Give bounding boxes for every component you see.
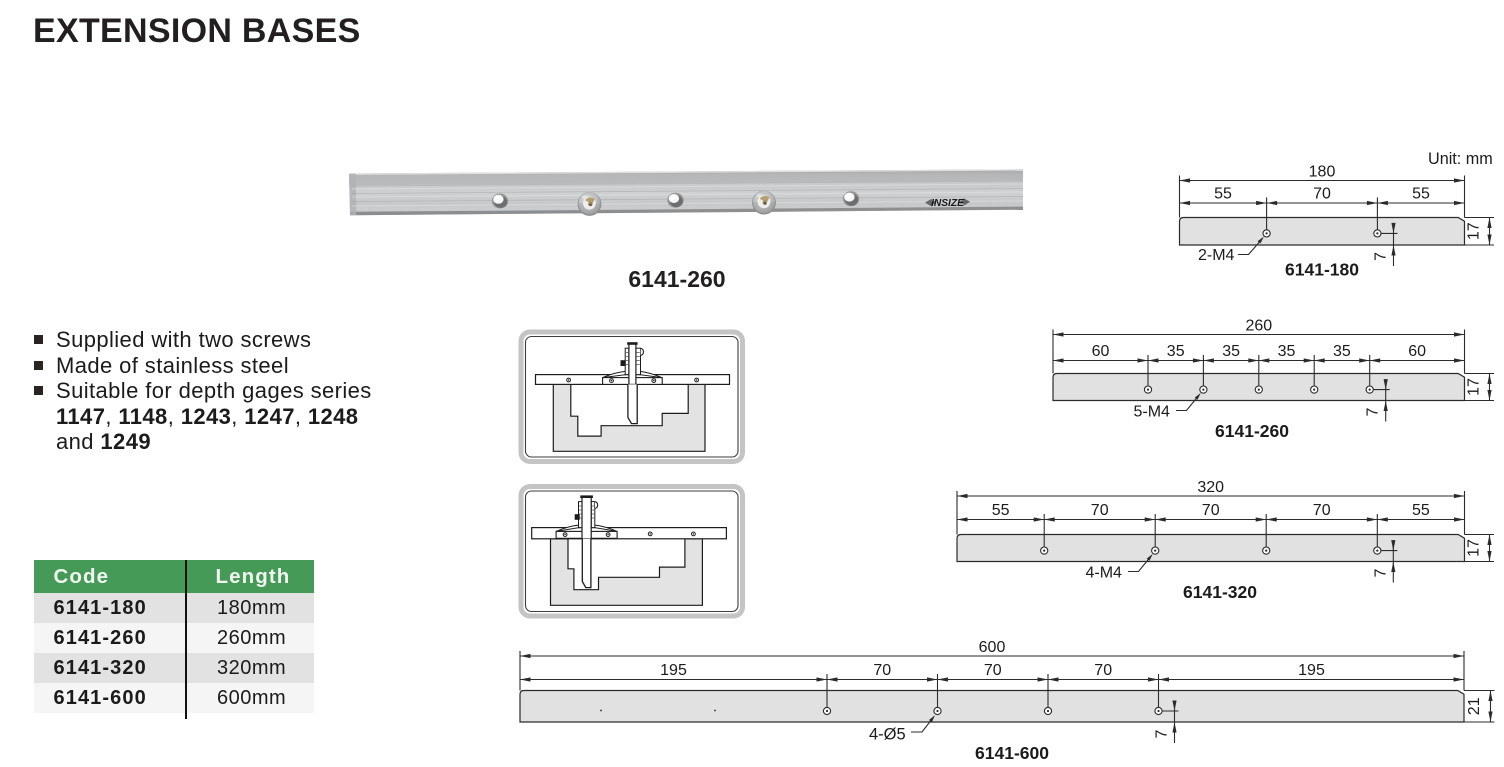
svg-text:60: 60	[1408, 343, 1426, 360]
svg-text:70: 70	[1202, 502, 1220, 519]
svg-text:195: 195	[660, 662, 687, 679]
svg-text:70: 70	[1313, 186, 1331, 203]
svg-text:70: 70	[1313, 502, 1331, 519]
svg-text:55: 55	[1412, 186, 1430, 203]
svg-text:INSIZE: INSIZE	[931, 198, 965, 209]
svg-text:4-M4: 4-M4	[1086, 565, 1123, 582]
svg-text:180: 180	[1309, 164, 1336, 181]
svg-text:70: 70	[984, 662, 1002, 679]
svg-text:35: 35	[1333, 343, 1351, 360]
svg-text:195: 195	[1298, 662, 1325, 679]
svg-text:7: 7	[1372, 568, 1389, 577]
svg-text:7: 7	[1154, 729, 1171, 738]
svg-text:55: 55	[992, 502, 1010, 519]
svg-text:70: 70	[1091, 502, 1109, 519]
svg-text:35: 35	[1278, 343, 1296, 360]
svg-text:6141-320: 6141-320	[1183, 582, 1257, 602]
svg-text:260: 260	[1245, 318, 1272, 335]
svg-text:70: 70	[873, 662, 891, 679]
svg-text:320: 320	[1197, 479, 1224, 496]
svg-text:55: 55	[1214, 186, 1232, 203]
svg-text:2-M4: 2-M4	[1198, 247, 1235, 264]
svg-text:600: 600	[979, 639, 1006, 656]
svg-text:7: 7	[1373, 252, 1390, 261]
svg-text:6141-600: 6141-600	[975, 743, 1049, 763]
svg-text:55: 55	[1412, 502, 1430, 519]
svg-text:17: 17	[1466, 539, 1483, 557]
svg-text:5-M4: 5-M4	[1134, 404, 1171, 421]
svg-text:35: 35	[1222, 343, 1240, 360]
svg-text:7: 7	[1365, 407, 1382, 416]
svg-text:60: 60	[1092, 343, 1110, 360]
svg-text:17: 17	[1466, 222, 1483, 240]
svg-text:4-Ø5: 4-Ø5	[869, 726, 906, 744]
svg-text:6141-180: 6141-180	[1285, 260, 1359, 280]
svg-text:17: 17	[1466, 378, 1483, 396]
svg-text:21: 21	[1466, 697, 1483, 715]
svg-text:70: 70	[1094, 662, 1112, 679]
svg-text:35: 35	[1167, 343, 1185, 360]
svg-text:6141-260: 6141-260	[1215, 421, 1289, 441]
